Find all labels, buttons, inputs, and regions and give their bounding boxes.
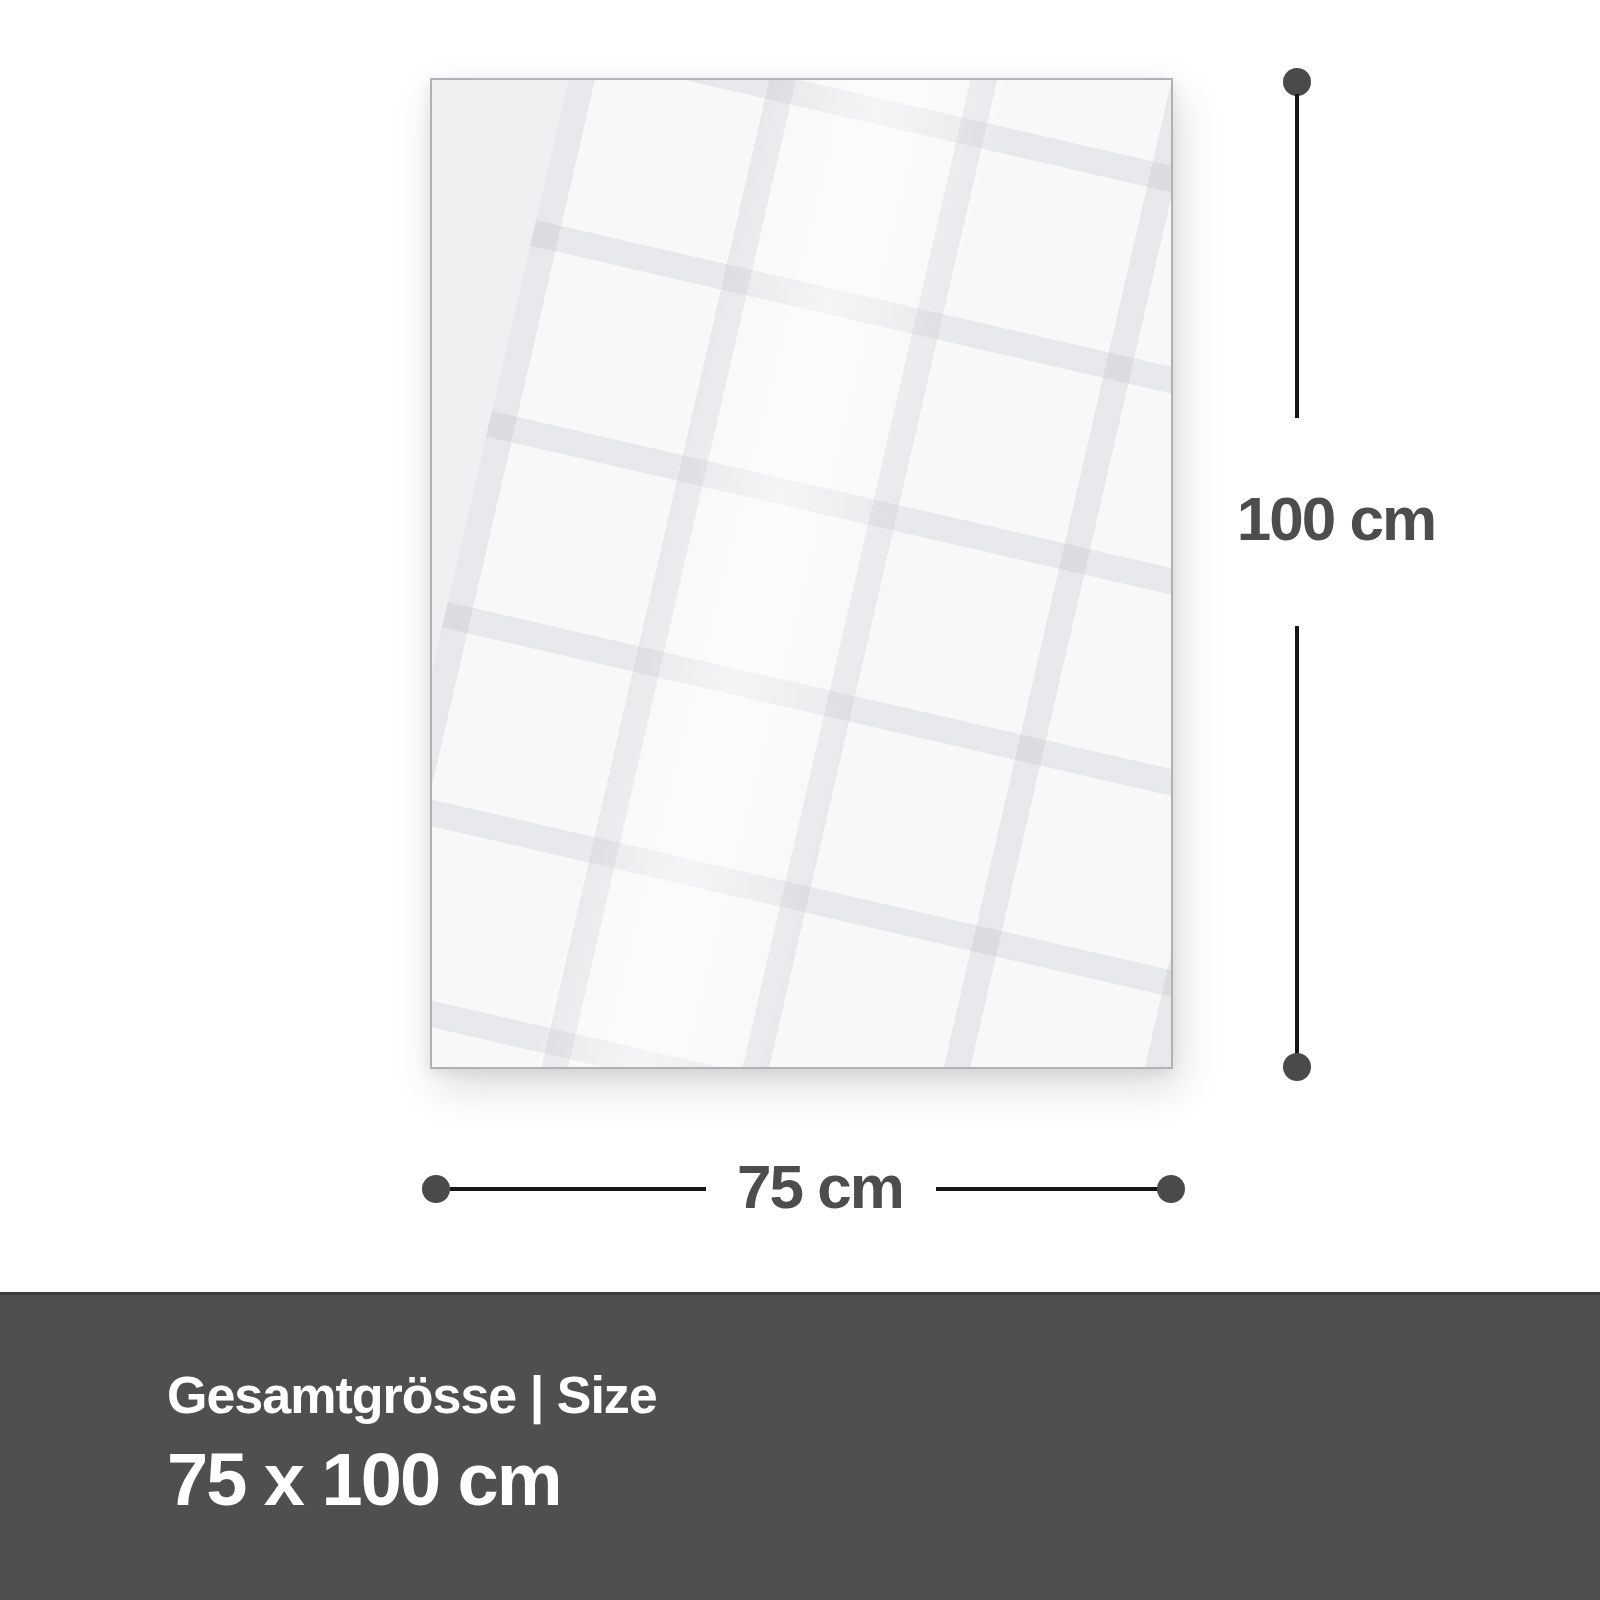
height-dimension-bottom-dot	[1283, 1053, 1311, 1081]
footer-title: Gesamtgrösse | Size	[167, 1365, 657, 1425]
size-diagram: 100 cm 75 cm Gesamtgrösse | Size 75 x 10…	[0, 0, 1600, 1600]
height-dimension-upper-segment	[1295, 94, 1299, 418]
height-dimension-top-dot	[1283, 68, 1311, 96]
width-dimension-right-segment	[936, 1187, 1158, 1191]
height-label: 100 cm	[1237, 483, 1435, 554]
width-dimension-right-dot	[1157, 1175, 1185, 1203]
footer: Gesamtgrösse | Size 75 x 100 cm	[0, 1292, 1600, 1600]
width-label: 75 cm	[737, 1151, 903, 1222]
width-dimension-left-dot	[422, 1175, 450, 1203]
width-dimension-left-segment	[450, 1187, 706, 1191]
footer-size-value: 75 x 100 cm	[167, 1437, 561, 1522]
product-panel	[430, 78, 1173, 1069]
glass-glare	[432, 80, 1171, 1067]
height-dimension-lower-segment	[1295, 626, 1299, 1054]
